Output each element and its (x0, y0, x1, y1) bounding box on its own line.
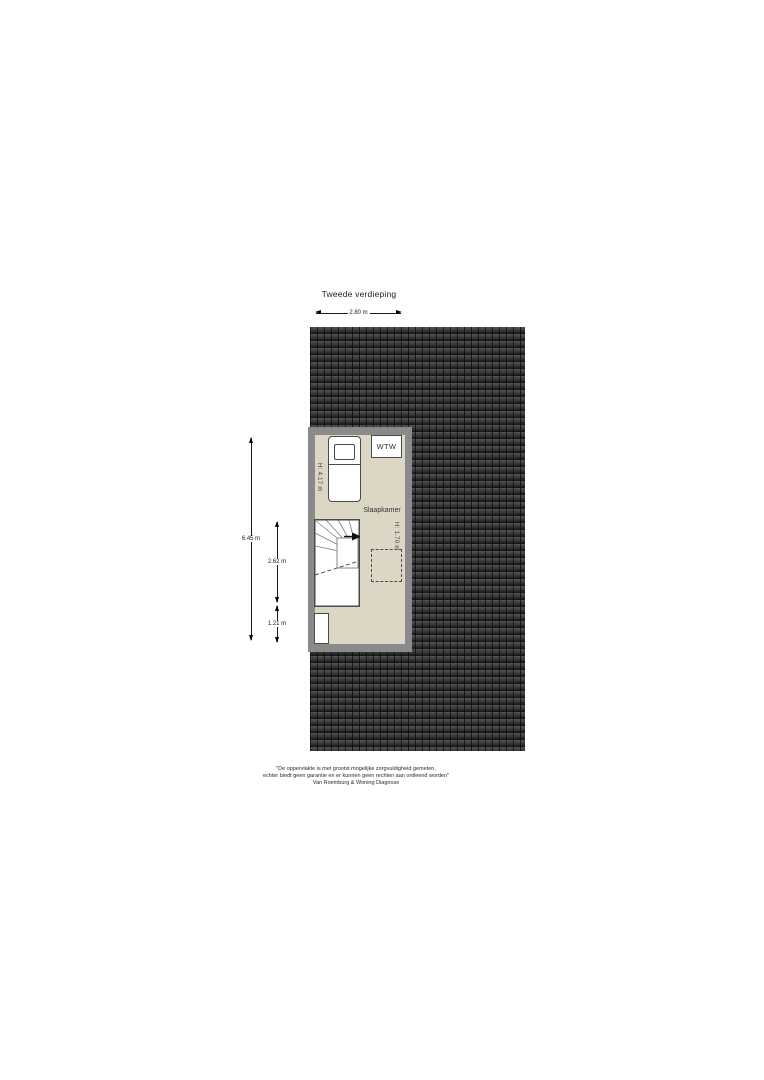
disclaimer-line: echter biedt geen garantie en er kunnen … (236, 773, 476, 780)
arrow-down-icon (249, 635, 253, 641)
disclaimer: "De oppervlakte is met grootst mogelijke… (236, 766, 476, 787)
wtw-unit: WTW (371, 435, 402, 458)
stair-core (337, 538, 358, 568)
dimension-label: 2.62 m (266, 559, 288, 565)
arrow-left-icon (315, 310, 321, 314)
dimension-label: 1.21 m (266, 621, 288, 627)
arrow-down-icon (275, 637, 279, 643)
dimension-label: 6.45 m (240, 536, 262, 542)
room-name-label: Slaapkamer (352, 507, 412, 514)
roof-window-outline (371, 549, 402, 582)
arrow-up-icon (275, 521, 279, 527)
arrow-right-icon (396, 310, 402, 314)
disclaimer-line: Van Roemburg & Woning Diagnose (236, 780, 476, 787)
dimension-depth-bottom: 1.21 m (267, 605, 287, 643)
dimension-label: 2.80 m (347, 310, 369, 316)
arrow-up-icon (275, 605, 279, 611)
arrow-up-icon (249, 437, 253, 443)
cupboard (314, 613, 329, 644)
floor-title: Tweede verdieping (279, 289, 439, 299)
bed-blanket-line (329, 464, 360, 465)
bed-pillow (334, 444, 355, 460)
dimension-depth-middle: 2.62 m (267, 521, 287, 603)
floorplan-page: Tweede verdieping 2.80 m WTW H: 4.17 m H… (0, 0, 764, 1080)
arrow-down-icon (275, 597, 279, 603)
disclaimer-line: "De oppervlakte is met grootst mogelijke… (236, 766, 476, 773)
staircase (314, 519, 360, 607)
ceiling-height-left-label: H: 4.17 m (316, 463, 322, 497)
wtw-label: WTW (377, 442, 397, 451)
dimension-depth-total: 6.45 m (241, 437, 261, 641)
dimension-width: 2.80 m (315, 309, 402, 316)
